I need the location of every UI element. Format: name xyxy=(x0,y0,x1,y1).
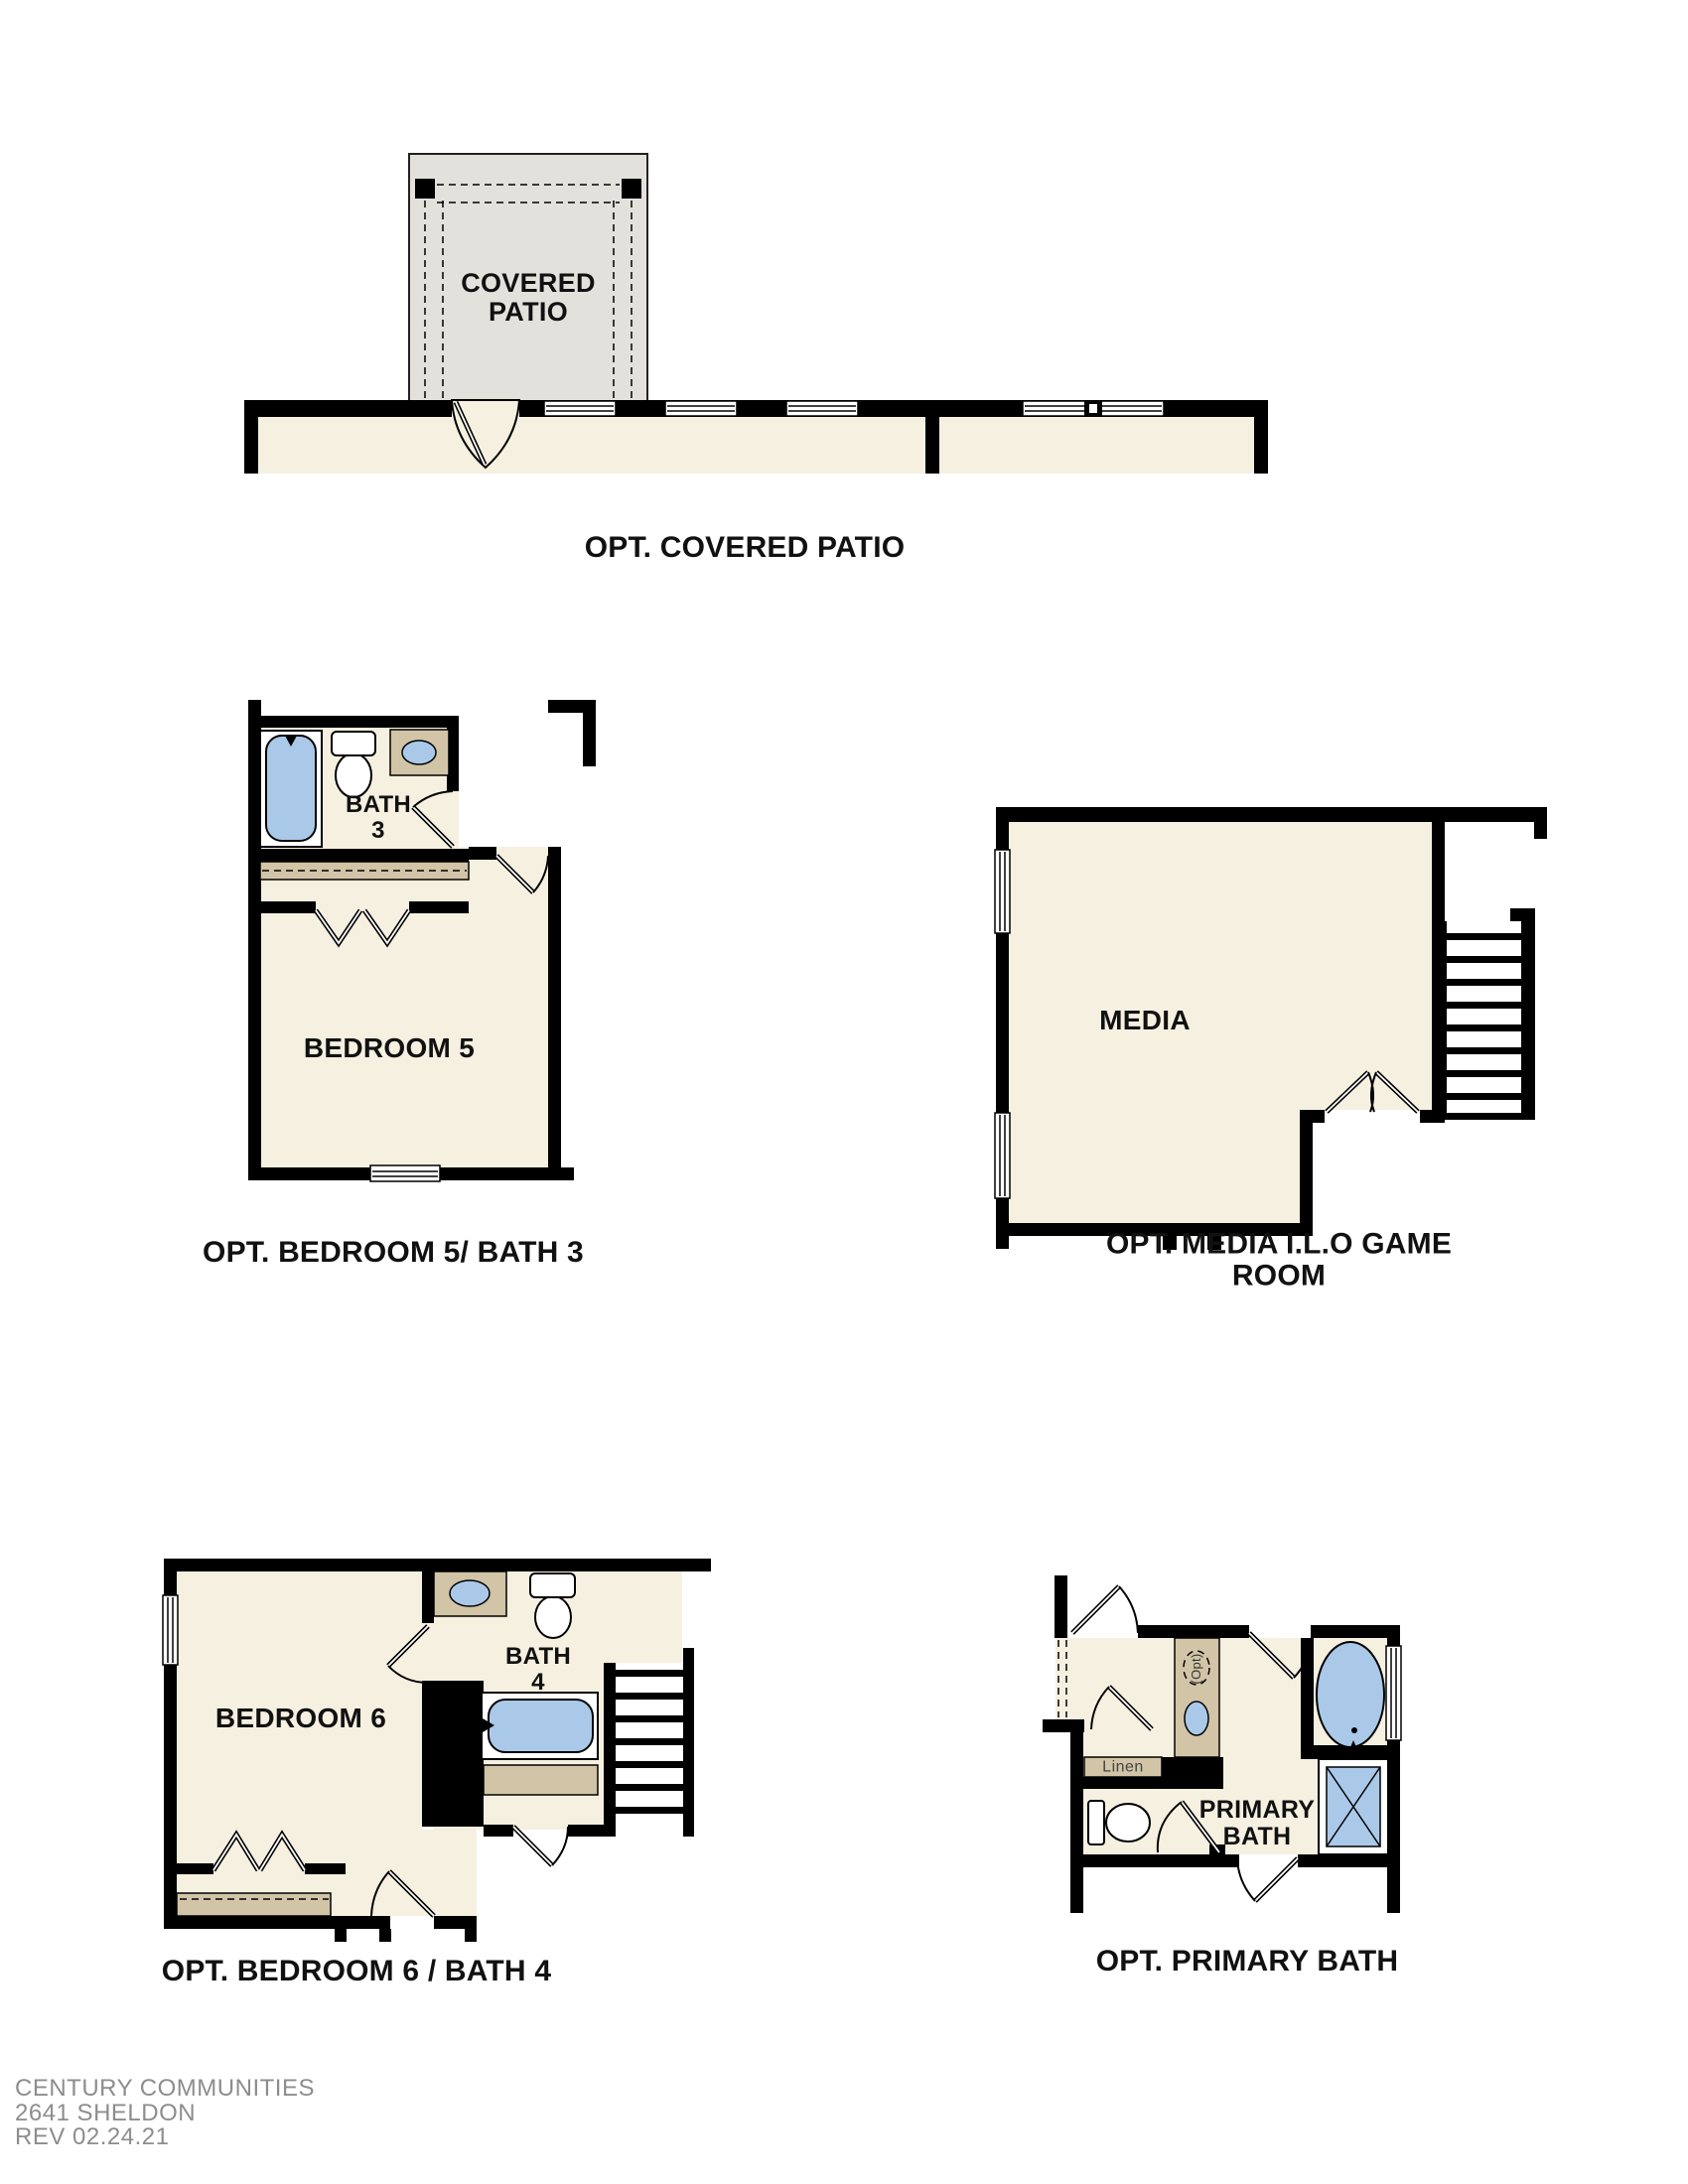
bath3-vanity-sink xyxy=(390,730,449,775)
bedroom6-room-label: BEDROOM 6 xyxy=(215,1704,386,1733)
bath4-door xyxy=(513,1827,568,1865)
bath4-stairs xyxy=(604,1648,694,1837)
linen-label: Linen xyxy=(1102,1758,1144,1775)
bath3-room-label: BATH 3 xyxy=(346,792,411,844)
floor-plan-linework xyxy=(0,0,1688,2184)
optional-sink-label: (Opt) xyxy=(1190,1653,1203,1684)
plan-bedroom6-bath4 xyxy=(163,1559,711,1942)
house-floor-strip xyxy=(246,407,1267,474)
plan-number: 2641 SHELDON xyxy=(15,2102,315,2126)
revision-date: REV 02.24.21 xyxy=(15,2125,315,2150)
primary-shower xyxy=(1319,1759,1388,1854)
plan-bedroom5-bath3 xyxy=(248,700,596,1181)
bedroom5-window xyxy=(370,1165,440,1181)
primary-window xyxy=(1386,1646,1401,1740)
media-caption: OPT. MEDIA I.L.O GAME ROOM xyxy=(1074,1229,1483,1294)
bath3-tub xyxy=(260,731,322,847)
plan-primary-bath xyxy=(1043,1575,1401,1913)
bath4-shelf xyxy=(484,1765,598,1795)
media-room-label: MEDIA xyxy=(1099,1006,1191,1035)
floor-plan-sheet: COVERED PATIO OPT. COVERED PATIO BATH 3 … xyxy=(0,0,1688,2184)
covered-patio-caption: OPT. COVERED PATIO xyxy=(585,532,906,564)
primary-toilet xyxy=(1088,1801,1150,1844)
covered-patio-room-label: COVERED PATIO xyxy=(461,269,596,327)
bath4-vanity-sink xyxy=(434,1571,506,1616)
closet-shelf xyxy=(260,862,469,880)
title-block: CENTURY COMMUNITIES 2641 SHELDON REV 02.… xyxy=(15,2077,315,2150)
media-stairs xyxy=(1442,908,1535,1120)
bedroom6-closet-shelf xyxy=(177,1893,331,1916)
plan-covered-patio xyxy=(244,154,1268,474)
bath4-tub xyxy=(482,1693,598,1759)
bedroom5-bath3-caption: OPT. BEDROOM 5/ BATH 3 xyxy=(203,1237,584,1269)
media-floor xyxy=(1009,822,1432,1223)
plan-media xyxy=(995,807,1547,1250)
bedroom6-bath4-caption: OPT. BEDROOM 6 / BATH 4 xyxy=(162,1956,551,1987)
bath3-toilet xyxy=(332,732,375,797)
bedroom5-room-label: BEDROOM 5 xyxy=(304,1033,475,1063)
exterior-bottom-door xyxy=(1237,1858,1298,1901)
primary-bath-caption: OPT. PRIMARY BATH xyxy=(1096,1946,1399,1978)
builder-name: CENTURY COMMUNITIES xyxy=(15,2077,315,2102)
primary-entry-door xyxy=(1072,1586,1138,1633)
bath4-room-label: BATH 4 xyxy=(505,1644,571,1696)
bedroom6-window xyxy=(163,1595,178,1665)
primary-bath-room-label: PRIMARY BATH xyxy=(1199,1797,1315,1850)
